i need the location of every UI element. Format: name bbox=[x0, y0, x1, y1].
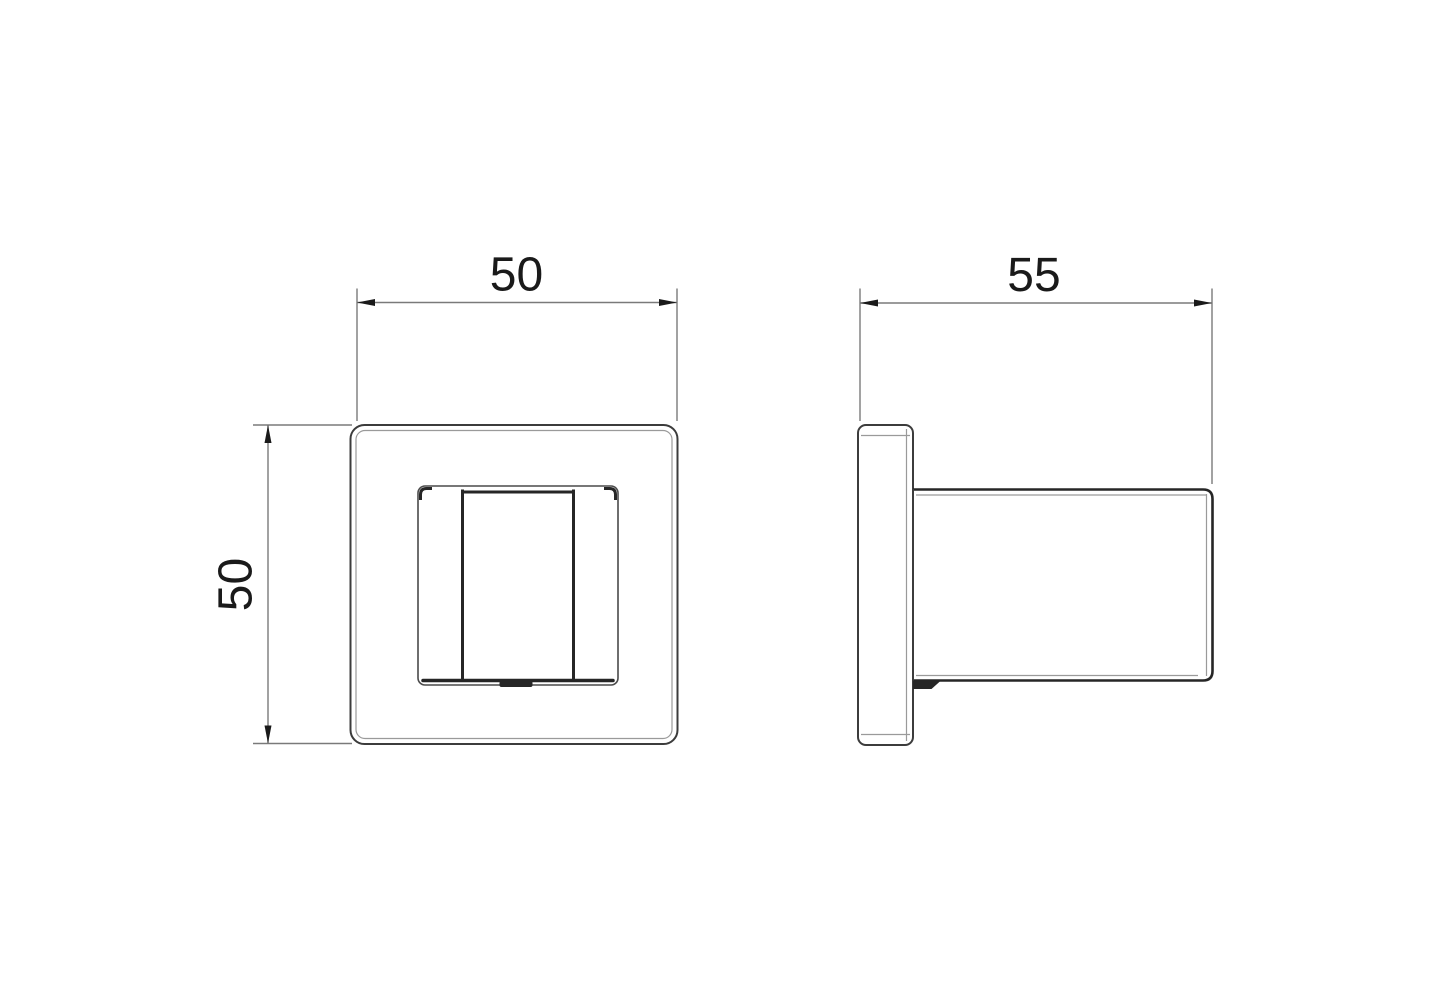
dimension-value-side-depth: 55 bbox=[1007, 249, 1060, 302]
arrowhead-right-icon bbox=[659, 299, 677, 306]
side-knob bbox=[913, 489, 1213, 689]
side-knob-bottom-tab bbox=[913, 681, 941, 690]
side-knob-body bbox=[913, 490, 1213, 681]
drawing-svg: 50 55 50 bbox=[0, 0, 1430, 1000]
side-plate-outline bbox=[858, 425, 913, 745]
dimension-front-height: 50 bbox=[210, 425, 353, 744]
dimension-value-front-height: 50 bbox=[210, 558, 263, 611]
arrowhead-left-icon bbox=[860, 300, 878, 307]
front-knob-outline bbox=[418, 486, 618, 685]
arrowhead-up-icon bbox=[265, 425, 272, 443]
front-knob bbox=[418, 486, 618, 687]
technical-drawing-canvas: 50 55 50 bbox=[0, 0, 1430, 1000]
arrowhead-right-icon bbox=[1194, 300, 1212, 307]
dimension-value-front-width: 50 bbox=[490, 249, 543, 302]
arrowhead-left-icon bbox=[357, 299, 375, 306]
dimension-front-width: 50 bbox=[357, 249, 677, 422]
side-view bbox=[858, 425, 1213, 745]
front-view bbox=[351, 425, 678, 744]
front-knob-bottom-tab bbox=[500, 681, 533, 687]
arrowhead-down-icon bbox=[265, 726, 272, 744]
